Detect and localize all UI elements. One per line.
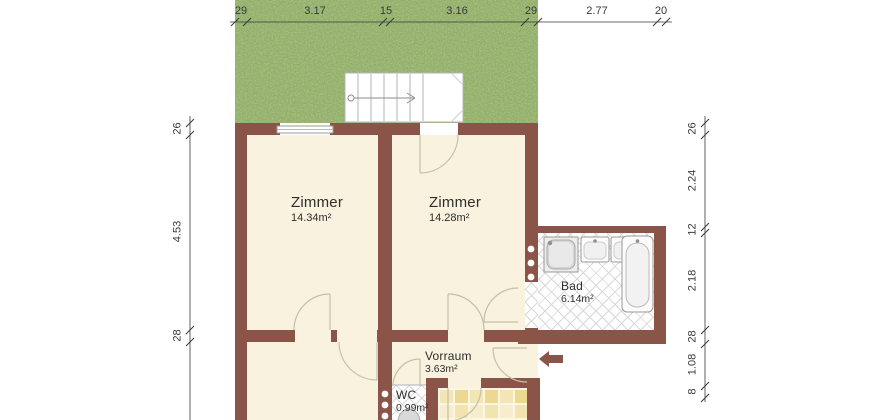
room-area: 14.34m² [291,213,343,225]
floor-plan: 29 3.17 15 3.16 29 2.77 20 26 4.53 28 26… [0,0,870,420]
room-name: Zimmer [429,195,481,211]
dim-left-1: 4.53 [172,214,185,250]
room-area: 0.99m² [396,403,429,414]
room-area: 14.28m² [429,213,481,225]
door-swings [294,135,527,420]
dim-right-0: 26 [687,111,700,147]
dim-top-6: 20 [641,5,681,18]
room-name: Bad [561,280,594,293]
dim-top-5: 2.77 [577,5,617,18]
radiator-dots [382,391,389,420]
room-label-bad: Bad 6.14m² [561,280,594,305]
room-label-zimmer2: Zimmer 14.28m² [429,195,481,224]
room-area: 6.14m² [561,294,594,305]
sink-icon [581,237,609,262]
room-name: Zimmer [291,195,343,211]
room-label-zimmer1: Zimmer 14.34m² [291,195,343,224]
dim-right-2: 12 [687,212,700,248]
room-name: Vorraum [425,350,472,363]
room-label-wc: WC 0.99m² [396,389,429,414]
dim-right-6: 8 [687,374,700,410]
room-label-vorraum: Vorraum 3.63m² [425,350,472,375]
dim-top-0: 29 [221,5,261,18]
dim-top-2: 15 [366,5,406,18]
dim-left-0: 26 [172,111,185,147]
dim-right-1: 2.24 [687,163,700,199]
radiator-dots [528,246,535,281]
dim-top-1: 3.17 [295,5,335,18]
window-icon [277,126,333,133]
dim-right-3: 2.18 [687,263,700,299]
dim-top-4: 29 [511,5,551,18]
room-area: 3.63m² [425,364,472,375]
dim-left-2: 28 [172,318,185,354]
dim-top-3: 3.16 [437,5,477,18]
room-name: WC [396,389,429,402]
entrance-arrow-icon [539,351,563,367]
bathtub-icon [622,236,653,312]
staircase [345,73,463,122]
shower-icon [544,237,578,272]
